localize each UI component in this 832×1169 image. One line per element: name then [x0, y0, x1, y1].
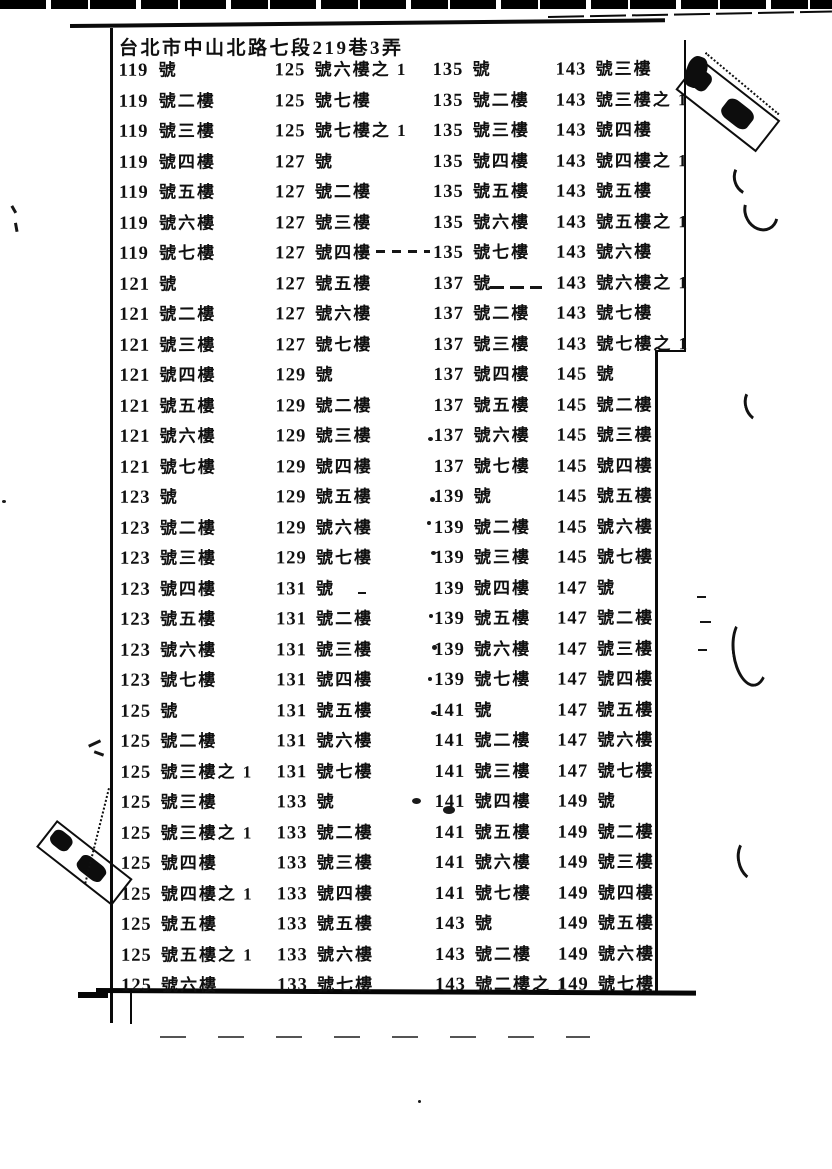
house-number: 143: [556, 121, 596, 142]
address-entry: 129號三樓: [276, 425, 373, 447]
house-number: 133: [277, 853, 317, 874]
house-number: 135: [433, 212, 473, 233]
address-entry: 147號五樓: [557, 699, 654, 721]
house-number: 127: [275, 304, 315, 325]
floor-label: 號六樓: [316, 518, 373, 537]
address-entry: 131號: [276, 578, 335, 600]
address-entry: 125號七樓: [275, 90, 372, 112]
house-number: 147: [557, 639, 597, 660]
house-number: 141: [434, 761, 474, 782]
smudge-dash: [698, 649, 707, 651]
address-entry: 129號七樓: [276, 547, 373, 569]
floor-label: 號四樓: [473, 365, 530, 384]
address-entry: 145號二樓: [557, 394, 654, 416]
floor-label: 號六樓: [159, 213, 216, 232]
floor-label: 號六樓之 1: [596, 273, 689, 292]
floor-label: 號六樓: [474, 426, 531, 445]
floor-label: 號七樓: [160, 457, 217, 476]
floor-label: 號三樓: [597, 639, 654, 658]
address-entry: 135號五樓: [433, 181, 530, 203]
address-entry: 121號三樓: [119, 334, 216, 356]
ink-speck: [428, 677, 432, 681]
ink-speck: [427, 521, 431, 525]
floor-label: 號二樓: [316, 396, 373, 415]
floor-label: 號四樓: [159, 152, 216, 171]
floor-label: 號六樓: [317, 945, 374, 964]
house-number: 137: [434, 395, 474, 416]
floor-label: 號三樓: [160, 549, 217, 568]
floor-label: 號三樓: [316, 640, 373, 659]
house-number: 135: [433, 151, 473, 172]
address-entry: 143號四樓: [556, 119, 653, 141]
floor-label: 號三樓: [159, 335, 216, 354]
house-number: 129: [275, 365, 315, 386]
house-number: 143: [435, 944, 475, 965]
floor-label: 號三樓: [161, 793, 218, 812]
floor-label: 號: [315, 365, 334, 384]
house-number: 149: [558, 944, 598, 965]
floor-label: 號: [317, 792, 336, 811]
floor-label: 號七樓: [597, 761, 654, 780]
house-number: 121: [119, 335, 159, 356]
floor-label: 號: [473, 60, 492, 79]
smudge-dash: [700, 621, 711, 623]
house-number: 143: [556, 304, 596, 325]
address-entry: 145號四樓: [557, 455, 654, 477]
house-number: 137: [434, 456, 474, 477]
house-number: 149: [558, 822, 598, 843]
floor-label: 號四樓: [597, 456, 654, 475]
address-entry: 141號五樓: [435, 821, 532, 843]
floor-label: 號三樓之 1: [596, 90, 689, 109]
house-number: 137: [433, 365, 473, 386]
floor-label: 號五樓: [161, 915, 218, 934]
house-number: 129: [276, 426, 316, 447]
address-entry: 135號二樓: [433, 89, 530, 111]
floor-label: 號四樓: [315, 243, 372, 262]
floor-label: 號七樓之 1: [315, 121, 408, 140]
address-entry: 123號三樓: [120, 548, 217, 570]
address-entry: 137號六樓: [434, 425, 531, 447]
address-entry: 125號五樓: [121, 914, 218, 936]
house-number: 135: [433, 243, 473, 264]
ink-speck: [429, 614, 433, 618]
house-number: 149: [558, 975, 598, 996]
house-number: 121: [119, 305, 159, 326]
address-grid: 119號119號二樓119號三樓119號四樓119號五樓119號六樓119號七樓…: [0, 0, 832, 1169]
house-number: 135: [433, 90, 473, 111]
floor-label: 號三樓之 1: [160, 762, 253, 781]
house-number: 131: [276, 640, 316, 661]
house-number: 131: [276, 762, 316, 783]
address-entry: 135號: [433, 59, 492, 81]
house-number: 131: [276, 670, 316, 691]
house-number: 129: [276, 548, 316, 569]
floor-label: 號三樓: [159, 122, 216, 141]
smudge-dash: [697, 596, 706, 598]
house-number: 123: [120, 671, 160, 692]
house-number: 129: [276, 457, 316, 478]
floor-label: 號二樓: [597, 608, 654, 627]
house-number: 139: [434, 609, 474, 630]
address-entry: 127號: [275, 151, 334, 173]
scanned-page: 台北市中山北路七段219巷3弄 119號119號二樓119號三樓119號四樓11…: [0, 0, 832, 1168]
address-entry: 123號五樓: [120, 609, 217, 631]
floor-label: 號四樓: [160, 579, 217, 598]
address-entry: 143號: [435, 913, 494, 935]
address-entry: 125號七樓之 1: [275, 120, 408, 142]
floor-label: 號四樓: [596, 120, 653, 139]
address-entry: 135號三樓: [433, 120, 530, 142]
address-entry: 143號二樓: [435, 943, 532, 965]
floor-label: 號四樓: [317, 884, 374, 903]
house-number: 137: [433, 273, 473, 294]
address-entry: 139號七樓: [434, 669, 531, 691]
floor-label: 號四樓: [161, 854, 218, 873]
address-entry: 139號四樓: [434, 577, 531, 599]
floor-label: 號五樓: [474, 609, 531, 628]
house-number: 147: [557, 731, 597, 752]
floor-label: 號四樓: [473, 151, 530, 170]
address-entry: 147號三樓: [557, 638, 654, 660]
ink-speck: [432, 645, 437, 650]
house-number: 145: [557, 426, 597, 447]
address-entry: 147號四樓: [557, 668, 654, 690]
address-entry: 129號四樓: [276, 456, 373, 478]
address-entry: 143號六樓: [556, 241, 653, 263]
house-number: 123: [120, 488, 160, 509]
house-number: 125: [275, 91, 315, 112]
address-entry: 131號五樓: [276, 700, 373, 722]
floor-label: 號五樓: [475, 822, 532, 841]
floor-label: 號二樓: [317, 823, 374, 842]
address-entry: 119號: [119, 60, 178, 82]
floor-label: 號五樓: [597, 486, 654, 505]
house-number: 127: [275, 274, 315, 295]
floor-label: 號七樓: [474, 670, 531, 689]
address-entry: 141號三樓: [434, 760, 531, 782]
house-number: 137: [433, 304, 473, 325]
floor-label: 號七樓: [598, 974, 655, 993]
smudge-dash: [358, 592, 366, 594]
floor-label: 號三樓: [474, 761, 531, 780]
house-number: 149: [558, 914, 598, 935]
floor-label: 號六樓: [597, 517, 654, 536]
address-entry: 127號七樓: [275, 334, 372, 356]
ink-speck: [431, 711, 437, 715]
house-number: 143: [556, 151, 596, 172]
address-entry: 127號二樓: [275, 181, 372, 203]
floor-label: 號四樓: [316, 457, 373, 476]
address-entry: 127號三樓: [275, 212, 372, 234]
address-entry: 127號四樓: [275, 242, 372, 264]
house-number: 131: [276, 701, 316, 722]
address-entry: 141號七樓: [435, 882, 532, 904]
address-entry: 145號: [556, 363, 615, 385]
house-number: 125: [121, 976, 161, 997]
house-number: 135: [433, 121, 473, 142]
address-entry: 125號六樓: [121, 975, 218, 997]
floor-label: 號五樓: [316, 701, 373, 720]
house-number: 147: [557, 578, 597, 599]
house-number: 147: [557, 761, 597, 782]
address-entry: 137號: [433, 272, 492, 294]
address-entry: 149號三樓: [558, 851, 655, 873]
floor-label: 號七樓: [315, 335, 372, 354]
address-entry: 149號: [558, 790, 617, 812]
floor-label: 號三樓: [596, 59, 653, 78]
house-number: 129: [276, 396, 316, 417]
floor-label: 號四樓: [316, 670, 373, 689]
house-number: 119: [119, 213, 159, 234]
house-number: 135: [433, 182, 473, 203]
house-number: 141: [435, 883, 475, 904]
floor-label: 號五樓: [315, 274, 372, 293]
house-number: 129: [276, 487, 316, 508]
floor-label: 號二樓: [598, 822, 655, 841]
address-entry: 133號七樓: [277, 974, 374, 996]
floor-label: 號七樓: [596, 303, 653, 322]
floor-label: 號三樓: [315, 213, 372, 232]
floor-label: 號七樓: [317, 975, 374, 994]
address-entry: 135號七樓: [433, 242, 530, 264]
ink-speck: [418, 1100, 421, 1103]
house-number: 125: [121, 793, 161, 814]
house-number: 139: [434, 548, 474, 569]
address-entry: 135號四樓: [433, 150, 530, 172]
floor-label: 號五樓: [474, 395, 531, 414]
stamp-ink-blob: [47, 827, 75, 854]
floor-label: 號七樓: [597, 547, 654, 566]
address-entry: 121號五樓: [120, 395, 217, 417]
address-entry: 135號六樓: [433, 211, 530, 233]
house-number: 141: [435, 853, 475, 874]
house-number: 145: [557, 395, 597, 416]
house-number: 127: [275, 152, 315, 173]
address-entry: 121號: [119, 273, 178, 295]
floor-label: 號: [160, 488, 179, 507]
address-entry: 143號七樓之 1: [556, 333, 689, 355]
floor-label: 號五樓: [160, 610, 217, 629]
floor-label: 號四樓: [159, 366, 216, 385]
house-number: 139: [434, 487, 474, 508]
address-entry: 137號五樓: [434, 394, 531, 416]
house-number: 143: [556, 273, 596, 294]
floor-label: 號二樓: [474, 731, 531, 750]
address-entry: 133號三樓: [277, 852, 374, 874]
floor-label: 號: [159, 274, 178, 293]
address-entry: 149號四樓: [558, 882, 655, 904]
floor-label: 號七樓: [316, 548, 373, 567]
address-entry: 123號七樓: [120, 670, 217, 692]
house-number: 125: [120, 732, 160, 753]
house-number: 131: [276, 609, 316, 630]
stamp-ink-blob: [718, 95, 757, 132]
floor-label: 號五樓: [159, 183, 216, 202]
address-entry: 119號六樓: [119, 212, 216, 234]
address-entry: 121號六樓: [120, 426, 217, 448]
address-entry: 147號: [557, 577, 616, 599]
address-entry: 141號六樓: [435, 852, 532, 874]
floor-label: 號二樓: [473, 304, 530, 323]
house-number: 119: [119, 183, 159, 204]
house-number: 143: [435, 975, 475, 996]
house-number: 123: [120, 579, 160, 600]
house-number: 125: [121, 854, 161, 875]
house-number: 125: [120, 762, 160, 783]
address-entry: 125號三樓之 1: [121, 822, 254, 844]
house-number: 131: [276, 731, 316, 752]
house-number: 127: [275, 243, 315, 264]
smudge-dash: [360, 250, 430, 253]
address-entry: 129號: [275, 364, 334, 386]
floor-label: 號七樓: [475, 883, 532, 902]
address-entry: 133號五樓: [277, 913, 374, 935]
floor-label: 號六樓: [315, 304, 372, 323]
address-entry: 123號: [120, 487, 179, 509]
address-entry: 139號三樓: [434, 547, 531, 569]
floor-label: 號二樓: [160, 732, 217, 751]
address-entry: 123號四樓: [120, 578, 217, 600]
address-entry: 137號二樓: [433, 303, 530, 325]
address-entry: 143號三樓之 1: [556, 89, 689, 111]
floor-label: 號三樓: [598, 852, 655, 871]
house-number: 141: [435, 822, 475, 843]
address-entry: 147號六樓: [557, 729, 654, 751]
floor-label: 號五樓: [317, 914, 374, 933]
house-number: 149: [558, 883, 598, 904]
address-entry: 119號二樓: [119, 90, 216, 112]
floor-label: 號七樓: [160, 671, 217, 690]
address-entry: 127號五樓: [275, 273, 372, 295]
address-entry: 141號二樓: [434, 730, 531, 752]
address-entry: 147號二樓: [557, 607, 654, 629]
floor-label: 號二樓: [315, 182, 372, 201]
address-entry: 137號四樓: [433, 364, 530, 386]
address-entry: 125號六樓之 1: [275, 59, 408, 81]
house-number: 133: [277, 792, 317, 813]
floor-label: 號五樓之 1: [161, 945, 254, 964]
house-number: 137: [433, 334, 473, 355]
address-entry: 143號二樓之 1: [435, 974, 568, 996]
address-entry: 133號四樓: [277, 883, 374, 905]
house-number: 133: [277, 914, 317, 935]
address-entry: 119號四樓: [119, 151, 216, 173]
address-entry: 121號二樓: [119, 304, 216, 326]
address-entry: 145號六樓: [557, 516, 654, 538]
floor-label: 號二樓: [597, 395, 654, 414]
floor-label: 號三樓之 1: [161, 823, 254, 842]
ink-speck: [430, 497, 435, 502]
address-entry: 119號三樓: [119, 121, 216, 143]
address-entry: 119號五樓: [119, 182, 216, 204]
address-entry: 133號六樓: [277, 944, 374, 966]
floor-label: 號六樓: [161, 976, 218, 995]
floor-label: 號四樓: [597, 669, 654, 688]
address-entry: 143號七樓: [556, 302, 653, 324]
house-number: 147: [557, 609, 597, 630]
floor-label: 號: [597, 578, 616, 597]
floor-label: 號三樓: [317, 853, 374, 872]
address-entry: 139號五樓: [434, 608, 531, 630]
floor-label: 號: [159, 61, 178, 80]
floor-label: 號六樓: [475, 853, 532, 872]
address-entry: 125號四樓之 1: [121, 883, 254, 905]
house-number: 143: [556, 182, 596, 203]
floor-label: 號三樓: [474, 548, 531, 567]
address-entry: 125號二樓: [120, 731, 217, 753]
floor-label: 號二樓: [473, 90, 530, 109]
floor-label: 號六樓: [316, 731, 373, 750]
house-number: 133: [277, 884, 317, 905]
floor-label: 號六樓: [160, 427, 217, 446]
address-entry: 145號七樓: [557, 546, 654, 568]
house-number: 131: [276, 579, 316, 600]
house-number: 129: [276, 518, 316, 539]
house-number: 145: [557, 487, 597, 508]
house-number: 149: [558, 792, 598, 813]
ink-speck: [443, 806, 455, 814]
floor-label: 號二樓: [160, 518, 217, 537]
floor-label: 號四樓之 1: [161, 884, 254, 903]
house-number: 145: [557, 517, 597, 538]
house-number: 143: [556, 60, 596, 81]
floor-label: 號二樓之 1: [475, 975, 568, 994]
floor-label: 號五樓之 1: [596, 212, 689, 231]
house-number: 121: [120, 396, 160, 417]
floor-label: 號四樓: [474, 578, 531, 597]
house-number: 123: [120, 610, 160, 631]
floor-label: 號二樓: [474, 517, 531, 536]
floor-label: 號六樓: [473, 212, 530, 231]
address-entry: 143號五樓: [556, 180, 653, 202]
floor-label: 號六樓: [160, 640, 217, 659]
house-number: 127: [275, 182, 315, 203]
floor-label: 號五樓: [597, 700, 654, 719]
floor-label: 號二樓: [159, 91, 216, 110]
address-entry: 121號四樓: [119, 365, 216, 387]
house-number: 145: [556, 365, 596, 386]
house-number: 133: [277, 945, 317, 966]
floor-label: 號三樓: [316, 426, 373, 445]
address-entry: 131號三樓: [276, 639, 373, 661]
floor-label: 號七樓之 1: [596, 334, 689, 353]
address-entry: 123號二樓: [120, 517, 217, 539]
house-number: 145: [557, 456, 597, 477]
floor-label: 號六樓: [597, 730, 654, 749]
floor-label: 號四樓: [598, 883, 655, 902]
address-entry: 143號六樓之 1: [556, 272, 689, 294]
floor-label: 號: [475, 914, 494, 933]
house-number: 125: [121, 945, 161, 966]
floor-label: 號三樓: [473, 121, 530, 140]
floor-label: 號二樓: [316, 609, 373, 628]
house-number: 139: [434, 517, 474, 538]
ink-speck: [431, 551, 436, 555]
address-entry: 139號二樓: [434, 516, 531, 538]
floor-label: 號: [474, 700, 493, 719]
house-number: 121: [120, 457, 160, 478]
house-number: 127: [275, 335, 315, 356]
floor-label: 號七樓: [474, 456, 531, 475]
house-number: 125: [120, 701, 160, 722]
address-entry: 137號三樓: [433, 333, 530, 355]
address-entry: 131號七樓: [276, 761, 373, 783]
house-number: 125: [121, 884, 161, 905]
address-entry: 131號六樓: [276, 730, 373, 752]
house-number: 147: [557, 700, 597, 721]
floor-label: 號: [315, 152, 334, 171]
